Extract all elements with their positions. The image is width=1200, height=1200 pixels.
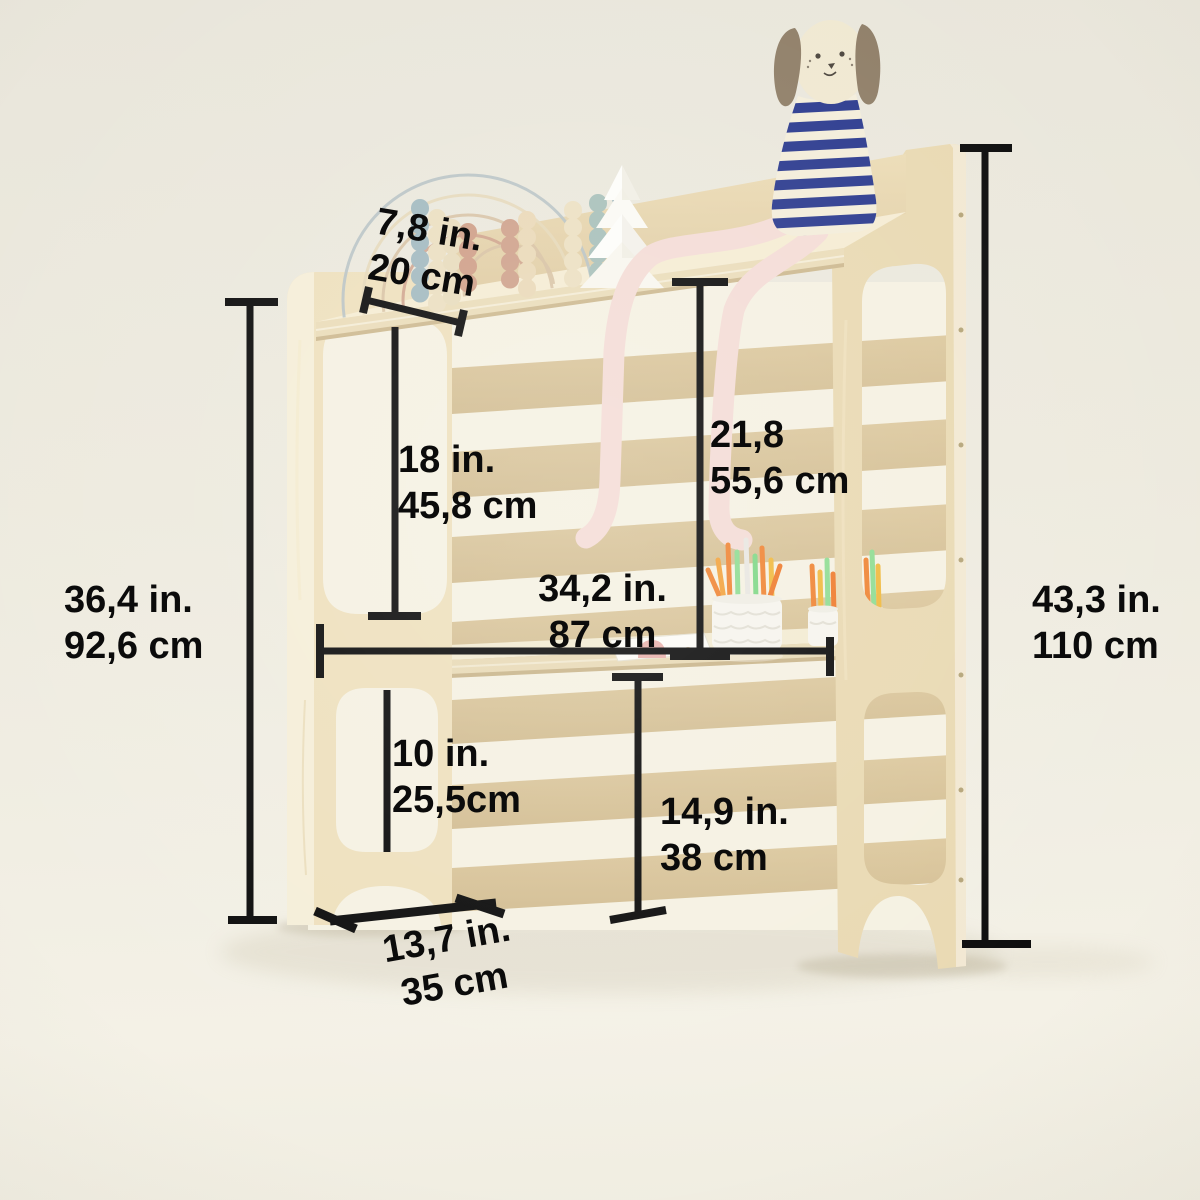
dim-label-upper-opening-height-cm: 45,8 cm: [398, 483, 537, 529]
dim-label-width: 34,2 in. 87 cm: [500, 566, 705, 658]
dim-line-total-height: [960, 148, 1031, 944]
dim-label-desk-to-top-height: 21,8 55,6 cm: [710, 412, 849, 504]
product-dimension-diagram: 7,8 in. 20 cm 18 in. 45,8 cm 21,8 55,6 c…: [0, 0, 1200, 1200]
dim-label-total-height-cm: 110 cm: [1032, 623, 1161, 669]
dim-label-lower-opening-height: 10 in. 25,5cm: [392, 731, 521, 823]
dim-label-lower-opening-height-cm: 25,5cm: [392, 777, 521, 823]
dim-label-total-height-inches: 43,3 in.: [1032, 577, 1161, 623]
dim-label-side-panel-height: 36,4 in. 92,6 cm: [64, 577, 203, 669]
dim-label-width-cm: 87 cm: [500, 612, 705, 658]
dim-label-desk-surface-height-cm: 38 cm: [660, 835, 789, 881]
dim-label-width-inches: 34,2 in.: [500, 566, 705, 612]
dim-label-lower-opening-height-inches: 10 in.: [392, 731, 521, 777]
dim-label-upper-opening-height-inches: 18 in.: [398, 437, 537, 483]
dim-label-side-panel-height-cm: 92,6 cm: [64, 623, 203, 669]
dim-label-upper-opening-height: 18 in. 45,8 cm: [398, 437, 537, 529]
dim-label-total-height: 43,3 in. 110 cm: [1032, 577, 1161, 669]
dim-label-desk-to-top-height-cm: 55,6 cm: [710, 458, 849, 504]
dim-label-desk-surface-height-inches: 14,9 in.: [660, 789, 789, 835]
dim-label-desk-surface-height: 14,9 in. 38 cm: [660, 789, 789, 881]
dim-label-side-panel-height-inches: 36,4 in.: [64, 577, 203, 623]
dim-line-side-panel-height: [225, 302, 278, 920]
dim-label-desk-to-top-height-inches: 21,8: [710, 412, 849, 458]
